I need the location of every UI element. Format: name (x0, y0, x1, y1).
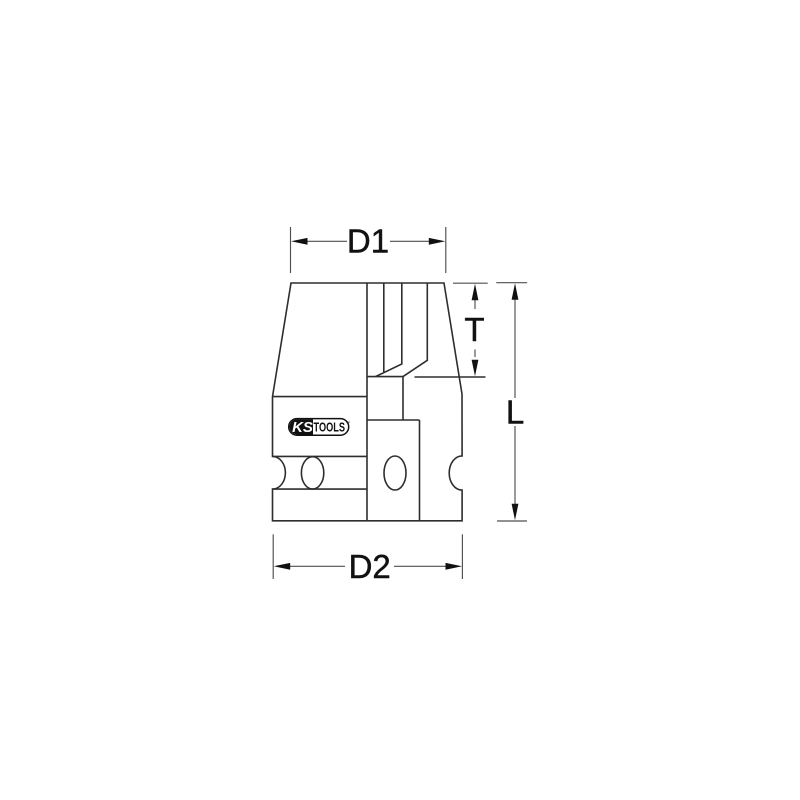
svg-text:TOOLS: TOOLS (314, 420, 346, 434)
svg-text:™: ™ (346, 421, 351, 426)
svg-text:L: L (506, 394, 524, 431)
svg-text:D2: D2 (349, 548, 391, 585)
svg-text:T: T (464, 311, 484, 348)
svg-text:D1: D1 (347, 223, 389, 260)
svg-text:KS: KS (292, 419, 313, 436)
